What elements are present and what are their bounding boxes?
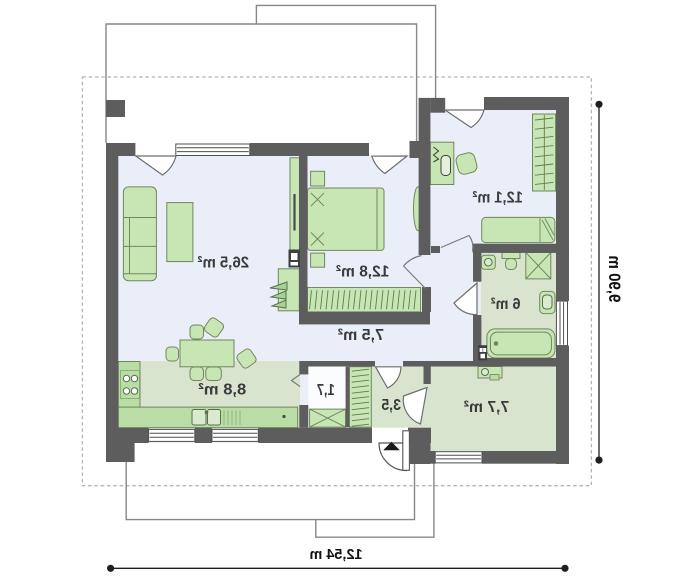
svg-text:9,90 m: 9,90 m xyxy=(605,256,624,303)
svg-text:8,8 m²: 8,8 m² xyxy=(198,382,246,399)
svg-text:1,7: 1,7 xyxy=(317,382,335,399)
svg-text:26,5 m²: 26,5 m² xyxy=(198,255,250,272)
svg-text:12,8 m²: 12,8 m² xyxy=(336,264,389,281)
svg-text:7,5 m²: 7,5 m² xyxy=(338,327,384,344)
svg-text:3,5: 3,5 xyxy=(381,397,401,414)
svg-text:12,1 m²: 12,1 m² xyxy=(473,190,523,207)
svg-text:12,54 m: 12,54 m xyxy=(310,547,363,563)
svg-text:6 m²: 6 m² xyxy=(491,296,521,313)
svg-text:7,7 m²: 7,7 m² xyxy=(464,399,510,416)
